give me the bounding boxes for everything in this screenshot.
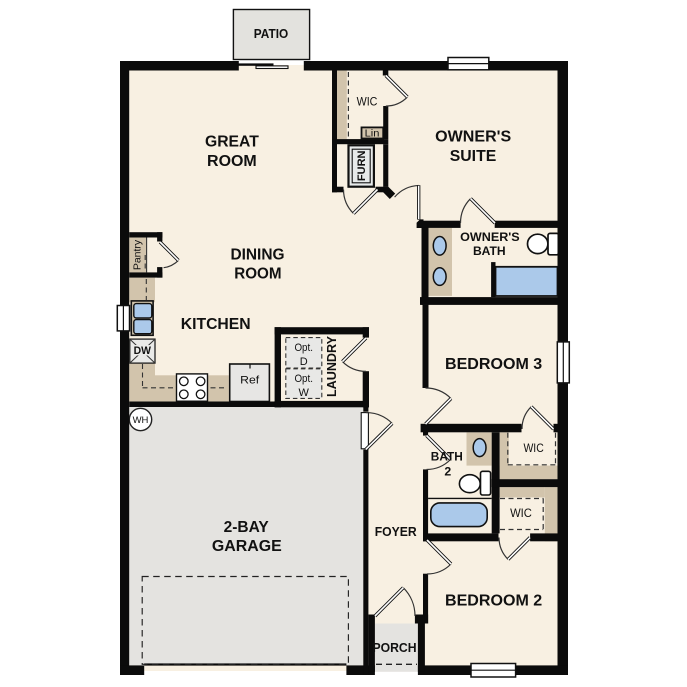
svg-text:FOYER: FOYER [375, 524, 417, 539]
svg-text:Opt.: Opt. [294, 342, 313, 354]
svg-text:2-BAY: 2-BAY [224, 519, 270, 536]
svg-text:DINING: DINING [230, 246, 284, 263]
svg-text:FURN: FURN [356, 150, 368, 181]
svg-text:WIC: WIC [523, 443, 543, 455]
svg-text:LAUNDRY: LAUNDRY [325, 335, 339, 397]
svg-text:Pantry: Pantry [131, 239, 143, 270]
svg-text:BEDROOM 2: BEDROOM 2 [445, 593, 542, 610]
svg-text:DW: DW [134, 345, 152, 357]
svg-text:BATH: BATH [431, 450, 463, 464]
svg-text:OWNER'S: OWNER'S [460, 230, 520, 244]
svg-text:ROOM: ROOM [234, 265, 281, 282]
svg-text:GREAT: GREAT [205, 134, 259, 151]
svg-text:Ref: Ref [240, 375, 260, 387]
svg-text:Lin: Lin [365, 127, 380, 139]
svg-text:WIC: WIC [357, 97, 378, 109]
svg-text:PATIO: PATIO [254, 26, 288, 41]
svg-text:BATH: BATH [473, 244, 506, 258]
svg-text:WIC: WIC [510, 508, 532, 520]
svg-text:PORCH: PORCH [372, 640, 416, 655]
svg-text:KITCHEN: KITCHEN [181, 316, 251, 333]
svg-text:BEDROOM 3: BEDROOM 3 [445, 356, 542, 373]
svg-text:ROOM: ROOM [207, 153, 257, 170]
svg-text:OWNER'S: OWNER'S [435, 129, 511, 146]
svg-text:D: D [300, 356, 308, 368]
svg-text:Opt.: Opt. [294, 373, 313, 385]
svg-text:SUITE: SUITE [450, 148, 497, 165]
svg-text:2: 2 [444, 465, 451, 479]
svg-text:WH: WH [133, 415, 149, 426]
svg-text:GARAGE: GARAGE [212, 538, 282, 555]
svg-text:W: W [299, 387, 310, 399]
